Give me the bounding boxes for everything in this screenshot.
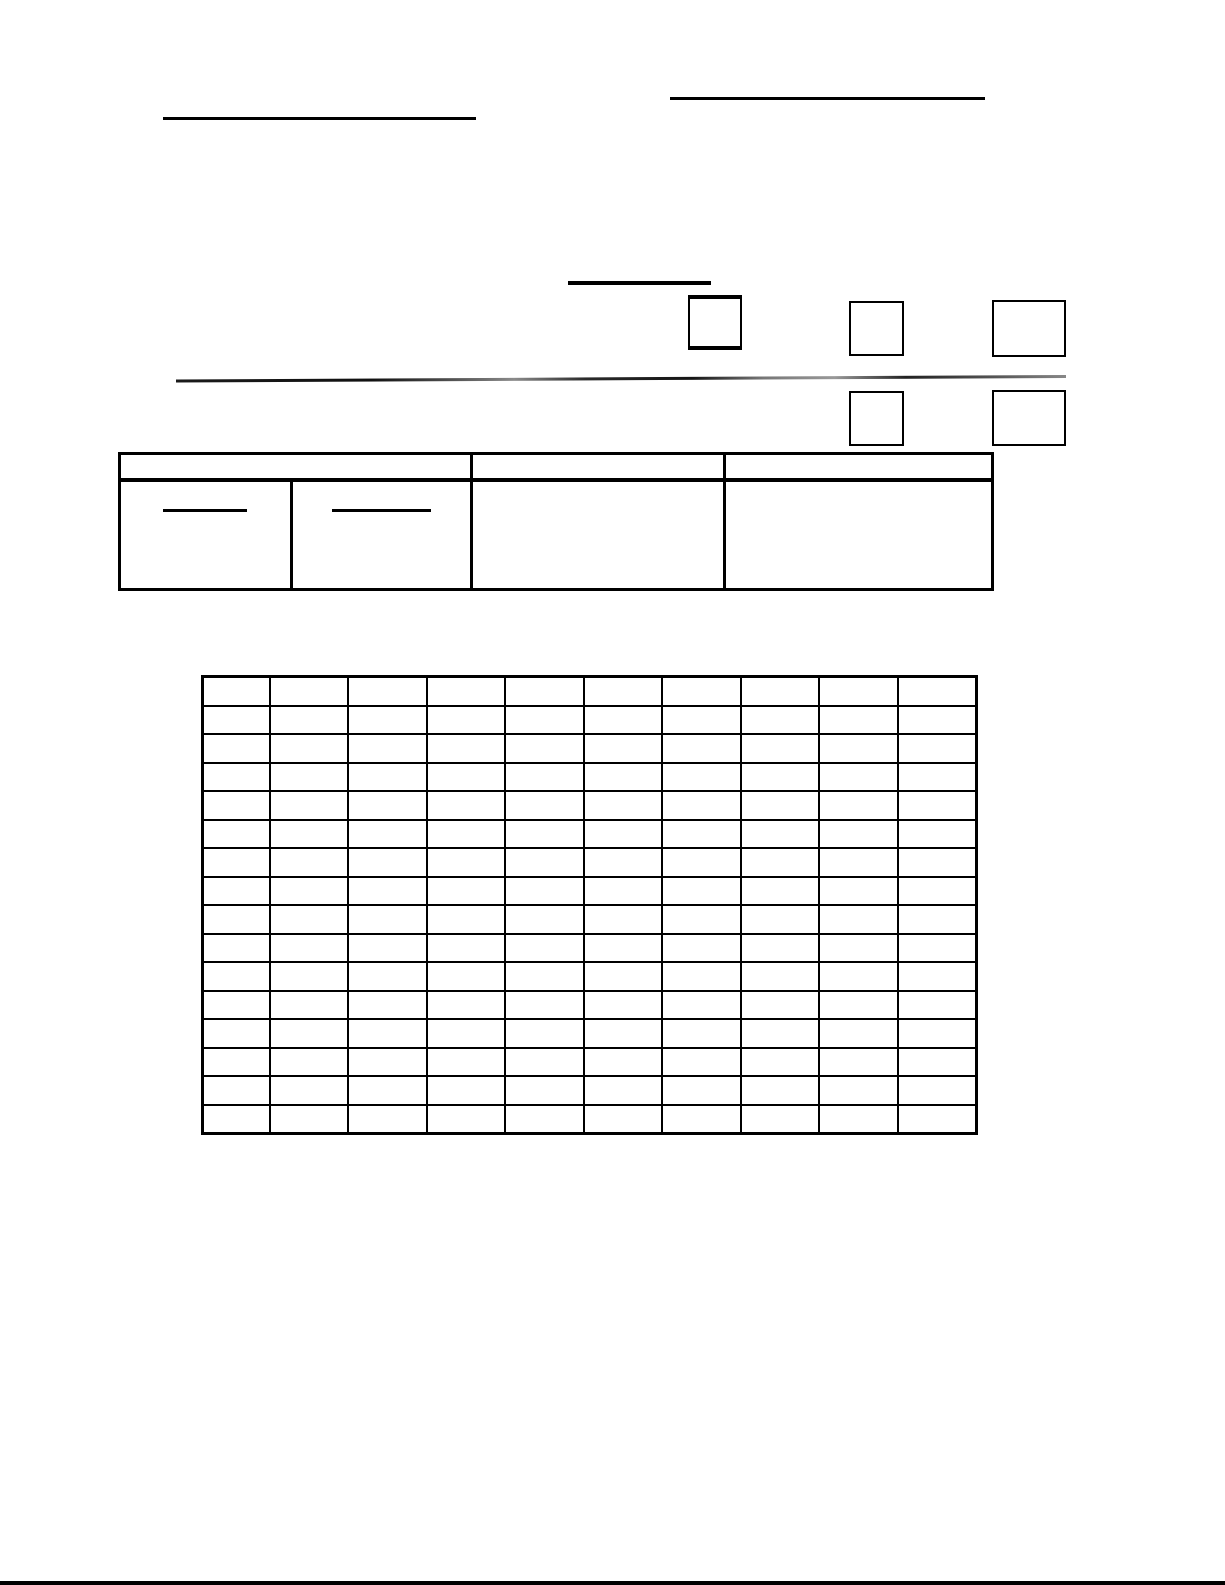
data-grid-table [201,675,978,1135]
grid-cell-r4-c5[interactable] [506,764,582,791]
grid-cell-r11-c2[interactable] [271,963,347,990]
grid-cell-r8-c2[interactable] [271,878,347,905]
grid-cell-r13-c9[interactable] [820,1020,896,1047]
grid-cell-r13-c4[interactable] [428,1020,504,1047]
checkbox-5[interactable] [992,390,1066,446]
grid-cell-r3-c5[interactable] [506,735,582,762]
grid-cell-r14-c3[interactable] [349,1049,425,1076]
grid-cell-r4-c7[interactable] [663,764,739,791]
grid-cell-r3-c1[interactable] [204,735,269,762]
grid-cell-r8-c5[interactable] [506,878,582,905]
grid-cell-r12-c9[interactable] [820,992,896,1019]
grid-cell-r1-c10[interactable] [899,678,975,705]
grid-cell-r3-c6[interactable] [585,735,661,762]
grid-cell-r8-c8[interactable] [742,878,818,905]
grid-cell-r2-c9[interactable] [820,707,896,734]
grid-cell-r13-c6[interactable] [585,1020,661,1047]
top-right-blank-line[interactable] [670,97,985,100]
grid-cell-r1-c2[interactable] [271,678,347,705]
grid-cell-r14-c9[interactable] [820,1049,896,1076]
grid-cell-r7-c6[interactable] [585,849,661,876]
grid-cell-r13-c10[interactable] [899,1020,975,1047]
grid-cell-r3-c3[interactable] [349,735,425,762]
grid-cell-r10-c5[interactable] [506,935,582,962]
grid-cell-r10-c10[interactable] [899,935,975,962]
grid-cell-r6-c4[interactable] [428,821,504,848]
info-table-body-divider [290,478,293,588]
checkbox-4[interactable] [849,391,904,446]
grid-cell-r12-c3[interactable] [349,992,425,1019]
grid-cell-r4-c9[interactable] [820,764,896,791]
checkbox-1[interactable] [688,295,742,350]
grid-cell-r5-c6[interactable] [585,792,661,819]
grid-cell-r7-c9[interactable] [820,849,896,876]
grid-cell-r9-c2[interactable] [271,906,347,933]
grid-cell-r1-c6[interactable] [585,678,661,705]
grid-cell-r15-c9[interactable] [820,1077,896,1104]
grid-cell-r7-c8[interactable] [742,849,818,876]
grid-cell-r12-c4[interactable] [428,992,504,1019]
grid-cell-r12-c8[interactable] [742,992,818,1019]
grid-cell-r4-c4[interactable] [428,764,504,791]
grid-cell-r10-c6[interactable] [585,935,661,962]
grid-cell-r16-c1[interactable] [204,1106,269,1133]
grid-cell-r7-c1[interactable] [204,849,269,876]
grid-cell-r10-c4[interactable] [428,935,504,962]
grid-cell-r14-c8[interactable] [742,1049,818,1076]
grid-cell-r9-c7[interactable] [663,906,739,933]
grid-cell-r12-c10[interactable] [899,992,975,1019]
info-table-column-divider-2 [723,455,726,588]
grid-cell-r2-c5[interactable] [506,707,582,734]
grid-cell-r15-c5[interactable] [506,1077,582,1104]
grid-cell-r14-c7[interactable] [663,1049,739,1076]
grid-cell-r3-c7[interactable] [663,735,739,762]
grid-cell-r14-c5[interactable] [506,1049,582,1076]
grid-cell-r16-c5[interactable] [506,1106,582,1133]
grid-cell-r14-c1[interactable] [204,1049,269,1076]
grid-cell-r5-c9[interactable] [820,792,896,819]
grid-cell-r7-c4[interactable] [428,849,504,876]
grid-cell-r9-c5[interactable] [506,906,582,933]
grid-cell-r5-c7[interactable] [663,792,739,819]
grid-cell-r3-c4[interactable] [428,735,504,762]
grid-cell-r9-c1[interactable] [204,906,269,933]
grid-cell-r15-c3[interactable] [349,1077,425,1104]
checkbox-3[interactable] [992,300,1066,357]
grid-cell-r10-c2[interactable] [271,935,347,962]
grid-cell-r6-c10[interactable] [899,821,975,848]
grid-cell-r10-c1[interactable] [204,935,269,962]
grid-cell-r10-c8[interactable] [742,935,818,962]
grid-cell-r7-c2[interactable] [271,849,347,876]
grid-cell-r16-c2[interactable] [271,1106,347,1133]
grid-cell-r11-c6[interactable] [585,963,661,990]
grid-cell-r16-c10[interactable] [899,1106,975,1133]
grid-cell-r16-c4[interactable] [428,1106,504,1133]
grid-cell-r6-c9[interactable] [820,821,896,848]
grid-cell-r6-c3[interactable] [349,821,425,848]
grid-cell-r13-c7[interactable] [663,1020,739,1047]
grid-cell-r14-c10[interactable] [899,1049,975,1076]
info-cell-2-blank-line[interactable] [332,509,431,512]
grid-cell-r5-c8[interactable] [742,792,818,819]
grid-cell-r12-c5[interactable] [506,992,582,1019]
grid-cell-r15-c2[interactable] [271,1077,347,1104]
top-left-blank-line[interactable] [163,117,476,120]
grid-cell-r14-c6[interactable] [585,1049,661,1076]
grid-cell-r1-c4[interactable] [428,678,504,705]
grid-cell-r16-c9[interactable] [820,1106,896,1133]
grid-cell-r9-c4[interactable] [428,906,504,933]
grid-cell-r2-c3[interactable] [349,707,425,734]
grid-cell-r15-c6[interactable] [585,1077,661,1104]
grid-cell-r9-c9[interactable] [820,906,896,933]
grid-cell-r5-c2[interactable] [271,792,347,819]
grid-cell-r9-c10[interactable] [899,906,975,933]
grid-cell-r2-c8[interactable] [742,707,818,734]
grid-cell-r6-c8[interactable] [742,821,818,848]
grid-cell-r2-c4[interactable] [428,707,504,734]
grid-cell-r8-c3[interactable] [349,878,425,905]
grid-cell-r2-c6[interactable] [585,707,661,734]
grid-cell-r6-c7[interactable] [663,821,739,848]
grid-cell-r3-c8[interactable] [742,735,818,762]
grid-cell-r3-c9[interactable] [820,735,896,762]
grid-cell-r11-c10[interactable] [899,963,975,990]
grid-cell-r6-c2[interactable] [271,821,347,848]
grid-cell-r6-c1[interactable] [204,821,269,848]
grid-cell-r1-c7[interactable] [663,678,739,705]
grid-cell-r16-c3[interactable] [349,1106,425,1133]
grid-cell-r4-c2[interactable] [271,764,347,791]
grid-cell-r8-c10[interactable] [899,878,975,905]
grid-cell-r3-c2[interactable] [271,735,347,762]
grid-cell-r4-c6[interactable] [585,764,661,791]
checkbox-section-title-blank-line[interactable] [568,281,711,285]
grid-cell-r2-c1[interactable] [204,707,269,734]
grid-cell-r1-c3[interactable] [349,678,425,705]
checkbox-2[interactable] [849,301,904,356]
grid-cell-r5-c10[interactable] [899,792,975,819]
grid-cell-r7-c5[interactable] [506,849,582,876]
grid-cell-r4-c10[interactable] [899,764,975,791]
grid-cell-r1-c5[interactable] [506,678,582,705]
grid-cell-r16-c7[interactable] [663,1106,739,1133]
grid-cell-r16-c8[interactable] [742,1106,818,1133]
grid-cell-r8-c7[interactable] [663,878,739,905]
grid-cell-r14-c2[interactable] [271,1049,347,1076]
grid-cell-r9-c6[interactable] [585,906,661,933]
grid-cell-r11-c7[interactable] [663,963,739,990]
grid-cell-r6-c5[interactable] [506,821,582,848]
grid-cell-r15-c1[interactable] [204,1077,269,1104]
grid-cell-r13-c3[interactable] [349,1020,425,1047]
grid-cell-r4-c3[interactable] [349,764,425,791]
grid-cell-r8-c6[interactable] [585,878,661,905]
grid-cell-r7-c3[interactable] [349,849,425,876]
grid-cell-r12-c7[interactable] [663,992,739,1019]
grid-cell-r11-c9[interactable] [820,963,896,990]
grid-cell-r11-c3[interactable] [349,963,425,990]
grid-cell-r13-c5[interactable] [506,1020,582,1047]
grid-cell-r10-c9[interactable] [820,935,896,962]
grid-cell-r12-c6[interactable] [585,992,661,1019]
grid-cell-r2-c2[interactable] [271,707,347,734]
grid-cell-r16-c6[interactable] [585,1106,661,1133]
grid-cell-r2-c10[interactable] [899,707,975,734]
grid-cell-r1-c1[interactable] [204,678,269,705]
page-bottom-edge-bar [0,1581,1225,1585]
grid-cell-r5-c5[interactable] [506,792,582,819]
grid-cell-r4-c1[interactable] [204,764,269,791]
grid-cell-r11-c1[interactable] [204,963,269,990]
grid-cell-r11-c5[interactable] [506,963,582,990]
grid-cell-r7-c10[interactable] [899,849,975,876]
grid-cell-r5-c1[interactable] [204,792,269,819]
grid-cell-r10-c3[interactable] [349,935,425,962]
scanned-form-page [0,0,1225,1585]
grid-cell-r15-c7[interactable] [663,1077,739,1104]
grid-cell-r8-c9[interactable] [820,878,896,905]
grid-cell-r13-c2[interactable] [271,1020,347,1047]
grid-cell-r5-c4[interactable] [428,792,504,819]
grid-cell-r15-c8[interactable] [742,1077,818,1104]
grid-cell-r2-c7[interactable] [663,707,739,734]
grid-cell-r14-c4[interactable] [428,1049,504,1076]
grid-cell-r13-c8[interactable] [742,1020,818,1047]
grid-cell-r7-c7[interactable] [663,849,739,876]
grid-cell-r8-c4[interactable] [428,878,504,905]
info-table-header-rule [121,478,991,482]
info-cell-1-blank-line[interactable] [163,509,247,512]
section-divider-rule [176,375,1066,383]
grid-cell-r13-c1[interactable] [204,1020,269,1047]
grid-cell-r12-c2[interactable] [271,992,347,1019]
grid-cell-r3-c10[interactable] [899,735,975,762]
grid-cell-r8-c1[interactable] [204,878,269,905]
grid-cell-r12-c1[interactable] [204,992,269,1019]
grid-cell-r11-c4[interactable] [428,963,504,990]
grid-cell-r4-c8[interactable] [742,764,818,791]
grid-cell-r15-c4[interactable] [428,1077,504,1104]
grid-cell-r1-c8[interactable] [742,678,818,705]
grid-cell-r9-c8[interactable] [742,906,818,933]
grid-cell-r1-c9[interactable] [820,678,896,705]
grid-cell-r9-c3[interactable] [349,906,425,933]
info-table-column-divider-1 [470,455,473,588]
grid-cell-r15-c10[interactable] [899,1077,975,1104]
grid-cell-r6-c6[interactable] [585,821,661,848]
info-table [118,452,994,591]
grid-cell-r10-c7[interactable] [663,935,739,962]
grid-cell-r5-c3[interactable] [349,792,425,819]
grid-cell-r11-c8[interactable] [742,963,818,990]
